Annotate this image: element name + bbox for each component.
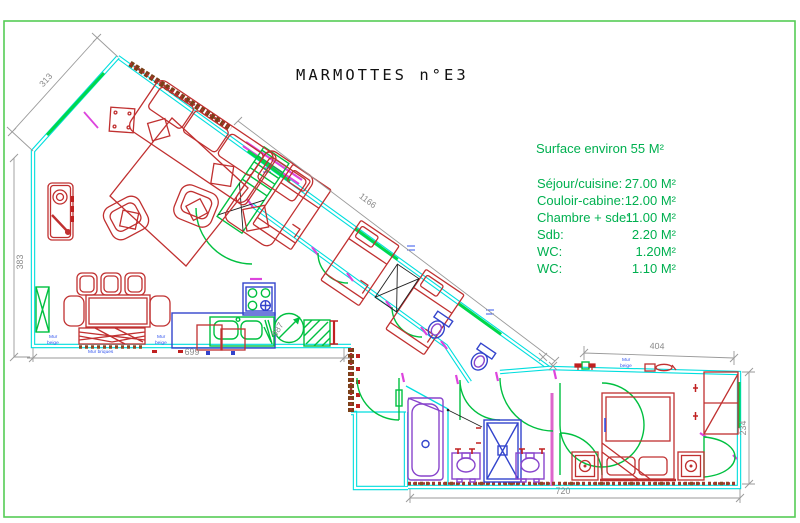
washbasin — [516, 453, 544, 482]
brick-wall-top-diagonal — [130, 64, 231, 129]
reference-dot — [447, 409, 450, 412]
legend-value-couloir: 12.00 M² — [625, 193, 677, 208]
nightstand-speaker — [678, 452, 704, 480]
nightstand-speaker — [572, 452, 598, 480]
wall-label-right-2: beige — [155, 340, 167, 346]
plan-title: MARMOTTES n°E3 — [296, 66, 469, 84]
legend-value-sdb: 2.20 M² — [632, 227, 677, 242]
legend-value-chambre: 11.00 M² — [626, 210, 677, 225]
tick — [231, 351, 235, 355]
closet-door-arc-bottom — [560, 433, 602, 475]
legend-value-wc2: 1.10 M² — [632, 261, 677, 276]
legend-label-sejour: Séjour/cuisine: — [537, 176, 622, 191]
bathtub — [408, 398, 443, 480]
bedroom — [572, 364, 738, 480]
window-facade-3 — [459, 304, 501, 335]
cabin-bed-3 — [386, 269, 464, 354]
kitchen — [152, 279, 338, 355]
double-bed — [600, 393, 676, 480]
legend-label-chambre: Chambre + sde: — [537, 210, 630, 225]
sideboard — [79, 328, 145, 347]
dim-404: 404 — [650, 341, 665, 352]
radiator — [304, 320, 330, 346]
tap-markers — [455, 428, 545, 454]
wardrobe — [693, 372, 738, 434]
legend-value-wc1: 1.20M² — [636, 244, 677, 259]
legend-label-couloir: Couloir-cabine: — [537, 193, 624, 208]
tick — [178, 350, 183, 353]
wardrobe-bifold-doors — [704, 436, 735, 478]
wall-label-bedroom-2: beige — [620, 363, 632, 369]
legend-label-sdb: Sdb: — [537, 227, 564, 242]
rug — [110, 118, 248, 266]
sofa — [127, 78, 278, 207]
wall-label-left-1: Mur — [49, 334, 58, 340]
window-left-wall — [36, 287, 49, 332]
shower-room-door-arc — [460, 380, 500, 420]
armchair — [171, 182, 222, 230]
armchair — [100, 193, 152, 244]
floor-plan-sheet: MARMOTTES n°E3 Surface environ 55 M² Séj… — [0, 0, 800, 523]
bathroom — [408, 398, 545, 482]
wall-label-bedroom-1: Mur — [622, 357, 631, 363]
window-facade-2 — [356, 229, 398, 260]
dim-313: 313 — [37, 71, 54, 89]
legend-label-wc1: WC: — [537, 244, 562, 259]
wall-label-right-1: Mur — [157, 334, 166, 340]
stove — [246, 287, 272, 311]
dim-987: 987 — [269, 320, 285, 338]
surface-legend: Surface environ 55 M² Séjour/cuisine: 27… — [536, 141, 677, 276]
kitchen-tall-unit — [48, 183, 74, 240]
tick — [206, 351, 210, 355]
kitchen-upper-counter — [243, 283, 275, 315]
windows — [36, 73, 739, 428]
tick — [152, 350, 157, 353]
drawing-frame — [4, 21, 795, 517]
dim-699: 699 — [185, 347, 200, 357]
window-marker-magenta — [84, 112, 98, 128]
section-marker — [330, 321, 338, 344]
dining-table — [86, 295, 150, 327]
legend-value-sejour: 27.00 M² — [625, 176, 677, 191]
dim-234: 234 — [738, 421, 748, 436]
wc-toilet-1 — [424, 311, 453, 342]
kitchen-counter — [172, 313, 275, 348]
dim-720: 720 — [556, 486, 571, 496]
wc-toilet-2 — [467, 343, 496, 374]
legend-surface-total: Surface environ 55 M² — [536, 141, 665, 156]
brick-wall-kitchen-right — [351, 348, 360, 412]
washbasin — [452, 453, 480, 482]
bath-entry-door-arc — [357, 378, 399, 420]
dim-1166: 1166 — [357, 191, 378, 210]
wall-label-briques: Mur briques — [88, 349, 114, 355]
dim-383: 383 — [15, 255, 25, 270]
kitchen-sink — [210, 317, 274, 346]
dining-set — [64, 273, 170, 327]
wall-label-left-2: beige — [47, 340, 59, 346]
floor-plan-drawing: MARMOTTES n°E3 Surface environ 55 M² Séj… — [0, 0, 800, 523]
legend-label-wc2: WC: — [537, 261, 562, 276]
